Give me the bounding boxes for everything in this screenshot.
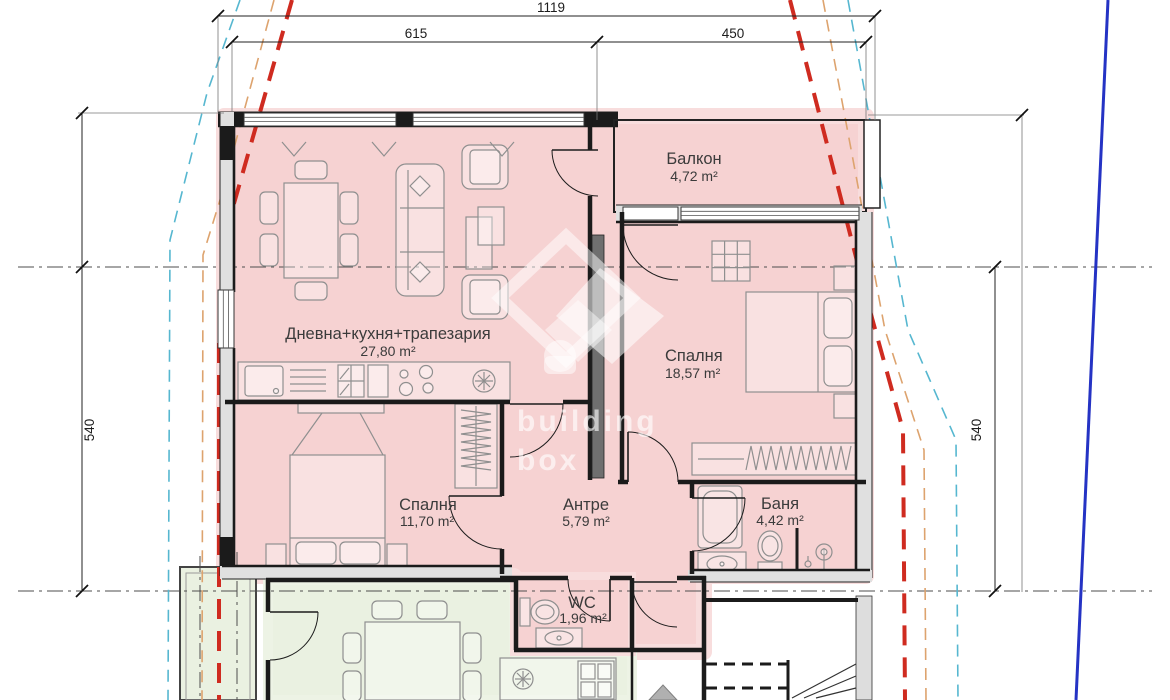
room-area-bathroom: 4,42 m² xyxy=(756,512,804,528)
basin-drain xyxy=(557,636,561,640)
tv-console xyxy=(298,403,384,413)
stove-plate xyxy=(581,682,595,697)
toilet-bowl xyxy=(531,600,559,624)
dining-chair xyxy=(343,633,361,663)
wall-pier xyxy=(220,126,234,160)
dining-table xyxy=(365,622,460,700)
shower-head-center xyxy=(821,549,827,555)
nightstand xyxy=(834,394,858,418)
dim-left-height: 540 xyxy=(82,419,97,442)
dining-chair xyxy=(295,282,327,300)
kitchen-unit xyxy=(368,365,388,397)
balcony-pillar xyxy=(864,120,880,208)
window xyxy=(244,113,396,126)
dining-chair xyxy=(260,234,278,266)
nightstand xyxy=(834,266,858,290)
armchair-seat xyxy=(470,150,500,184)
wall-pier xyxy=(396,112,413,126)
hob-burner xyxy=(420,366,433,379)
room-area-bedroom-large: 18,57 m² xyxy=(665,365,721,381)
room-area-wc: 1,96 m² xyxy=(559,610,607,626)
watermark-text-line2: box xyxy=(517,444,579,477)
toilet-tank xyxy=(520,598,530,626)
coffee-table xyxy=(478,207,504,245)
window xyxy=(218,290,234,348)
hob-burner xyxy=(423,383,433,393)
dining-chair xyxy=(295,161,327,179)
dining-chair xyxy=(463,633,481,663)
wall-band-right xyxy=(856,212,872,578)
dim-right-segment: 450 xyxy=(722,26,745,41)
watermark-text-line1: building xyxy=(517,405,658,438)
room-area-bedroom-small: 11,70 m² xyxy=(400,513,455,529)
window xyxy=(413,113,584,126)
bed-pillow xyxy=(824,298,852,338)
bed-pillow xyxy=(824,346,852,386)
nightstand xyxy=(266,544,286,568)
dining-chair xyxy=(372,601,402,619)
stove-plate xyxy=(581,664,595,679)
shelf-unit xyxy=(712,241,750,281)
bed-pillow xyxy=(340,542,380,564)
stove-plate xyxy=(598,664,611,679)
hob-burner xyxy=(400,383,413,396)
dining-chair xyxy=(463,671,481,700)
floor-plan-canvas: building box Балкон 4,72 m² Дневна+кухня… xyxy=(0,0,1170,700)
dining-chair xyxy=(260,192,278,224)
window xyxy=(681,207,859,220)
dim-total-width: 1119 xyxy=(537,0,565,15)
basin-drain xyxy=(720,562,724,566)
room-label-bedroom-small: Спалня xyxy=(399,496,457,514)
room-label-hallway: Антре xyxy=(563,496,609,514)
room-area-balcony: 4,72 m² xyxy=(670,168,718,184)
sink-drain xyxy=(274,389,279,394)
dining-table xyxy=(284,183,338,278)
balcony-door-frame xyxy=(623,207,678,220)
room-label-balcony: Балкон xyxy=(666,150,721,168)
stove-plate xyxy=(598,682,611,697)
room-area-hallway: 5,79 m² xyxy=(562,513,610,529)
dim-right-height: 540 xyxy=(969,419,984,442)
room-area-living: 27,80 m² xyxy=(360,343,416,359)
room-label-living: Дневна+кухня+трапезария xyxy=(285,325,490,343)
wall-band-bottom-left xyxy=(220,566,512,579)
room-label-bedroom-large: Спалня xyxy=(665,347,723,365)
dim-left-segment: 615 xyxy=(405,26,428,41)
room-label-bathroom: Баня xyxy=(761,495,799,513)
bed-pillow xyxy=(296,542,336,564)
nightstand xyxy=(387,544,407,568)
watermark-logo xyxy=(544,356,576,374)
dining-chair xyxy=(417,601,447,619)
dining-chair xyxy=(340,234,358,266)
dining-chair xyxy=(340,192,358,224)
hob-burner xyxy=(400,370,408,378)
wall-band-bottom-right xyxy=(688,570,872,582)
dining-chair xyxy=(343,671,361,700)
stair-wall-band xyxy=(856,596,872,700)
floor-plan-svg: building box Балкон 4,72 m² Дневна+кухня… xyxy=(0,0,1170,700)
